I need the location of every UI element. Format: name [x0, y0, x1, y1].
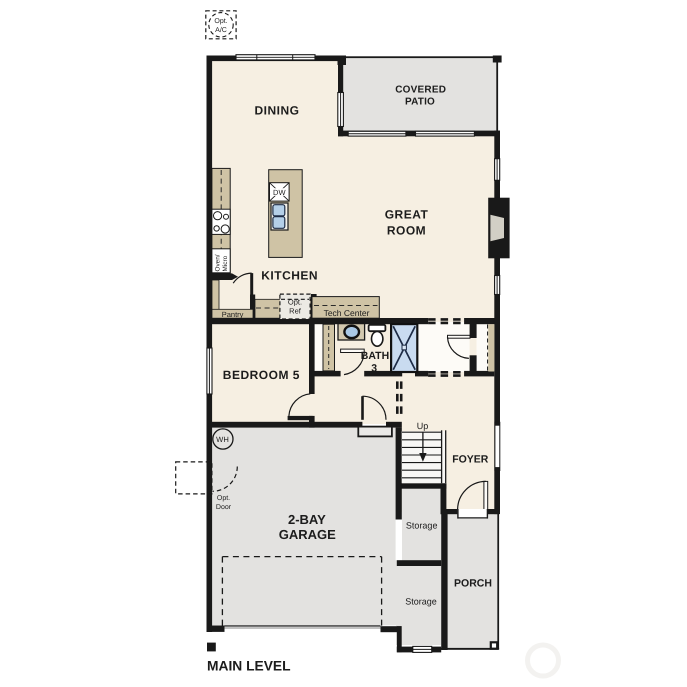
- svg-text:GREAT: GREAT: [385, 208, 429, 222]
- svg-text:KITCHEN: KITCHEN: [261, 269, 318, 283]
- svg-text:Door: Door: [216, 504, 232, 511]
- svg-text:Opt.: Opt.: [214, 18, 227, 25]
- svg-text:Storage: Storage: [406, 521, 438, 531]
- svg-text:ROOM: ROOM: [387, 224, 426, 238]
- svg-text:WH: WH: [216, 435, 229, 444]
- svg-text:3: 3: [371, 363, 377, 375]
- svg-text:PATIO: PATIO: [405, 96, 435, 107]
- svg-text:Opt.: Opt.: [217, 495, 230, 502]
- svg-text:2-BAY: 2-BAY: [288, 512, 326, 527]
- svg-text:Micro: Micro: [222, 255, 229, 271]
- svg-text:DINING: DINING: [255, 104, 300, 118]
- svg-text:Up: Up: [417, 421, 429, 431]
- svg-text:A/C: A/C: [215, 26, 227, 34]
- svg-text:DW: DW: [273, 188, 286, 197]
- svg-text:Oven/: Oven/: [215, 254, 222, 271]
- svg-text:BATH: BATH: [361, 350, 389, 362]
- svg-text:Tech Center: Tech Center: [324, 308, 370, 318]
- svg-text:Opt.: Opt.: [288, 297, 302, 306]
- svg-text:Pantry: Pantry: [222, 310, 244, 319]
- svg-text:MAIN LEVEL: MAIN LEVEL: [207, 659, 291, 674]
- svg-text:Storage: Storage: [405, 597, 437, 607]
- svg-text:FOYER: FOYER: [452, 454, 489, 466]
- svg-text:BEDROOM 5: BEDROOM 5: [223, 368, 300, 382]
- svg-text:PORCH: PORCH: [454, 578, 492, 590]
- svg-text:COVERED: COVERED: [395, 84, 446, 95]
- svg-text:Ref: Ref: [289, 306, 302, 315]
- svg-text:GARAGE: GARAGE: [279, 527, 336, 542]
